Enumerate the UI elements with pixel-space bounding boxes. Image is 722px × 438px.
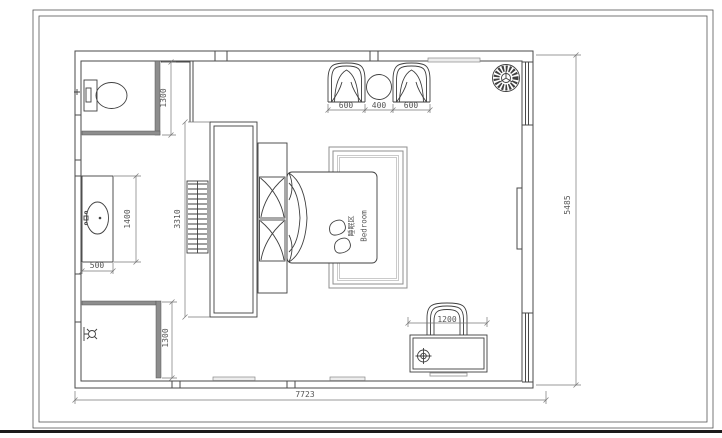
room-label-zh: 睡眠区 bbox=[349, 216, 356, 237]
radiator-icon bbox=[187, 181, 208, 253]
dim-overall-height: 5485 bbox=[564, 195, 572, 214]
sink-icon bbox=[84, 202, 109, 234]
shower-room-partition bbox=[82, 301, 161, 378]
plant-icon bbox=[493, 65, 520, 92]
dim-vanity-depth: 500 bbox=[90, 262, 104, 270]
dim-wardrobe: 3310 bbox=[174, 209, 182, 228]
dim-side-table: 400 bbox=[372, 102, 386, 110]
pillow bbox=[260, 177, 286, 218]
dim-armchair-left: 600 bbox=[339, 102, 353, 110]
bottom-rule bbox=[0, 430, 722, 433]
toilet-room-partition bbox=[82, 61, 160, 135]
toilet-icon bbox=[74, 80, 127, 111]
side-table bbox=[367, 75, 392, 100]
armchair-right bbox=[393, 63, 430, 102]
dim-desk: 1200 bbox=[437, 316, 456, 324]
dim-vanity-length: 1400 bbox=[124, 209, 132, 228]
dim-overall-width: 7723 bbox=[295, 391, 314, 399]
dim-armchair-right: 600 bbox=[404, 102, 418, 110]
dim-shower-room: 1300 bbox=[162, 328, 170, 347]
wardrobe bbox=[210, 122, 257, 317]
room-label-en: Bedroom bbox=[360, 210, 368, 242]
threshold-strips bbox=[213, 377, 365, 381]
pillow bbox=[260, 220, 286, 261]
floor-plan-sheet: 1300 3310 1400 500 1300 600 400 600 1200… bbox=[0, 0, 722, 438]
dim-toilet-room: 1300 bbox=[160, 88, 168, 107]
desk bbox=[410, 335, 487, 376]
armchair-left bbox=[328, 63, 365, 102]
curtain-strip bbox=[428, 58, 480, 62]
shower-icon bbox=[84, 327, 97, 341]
